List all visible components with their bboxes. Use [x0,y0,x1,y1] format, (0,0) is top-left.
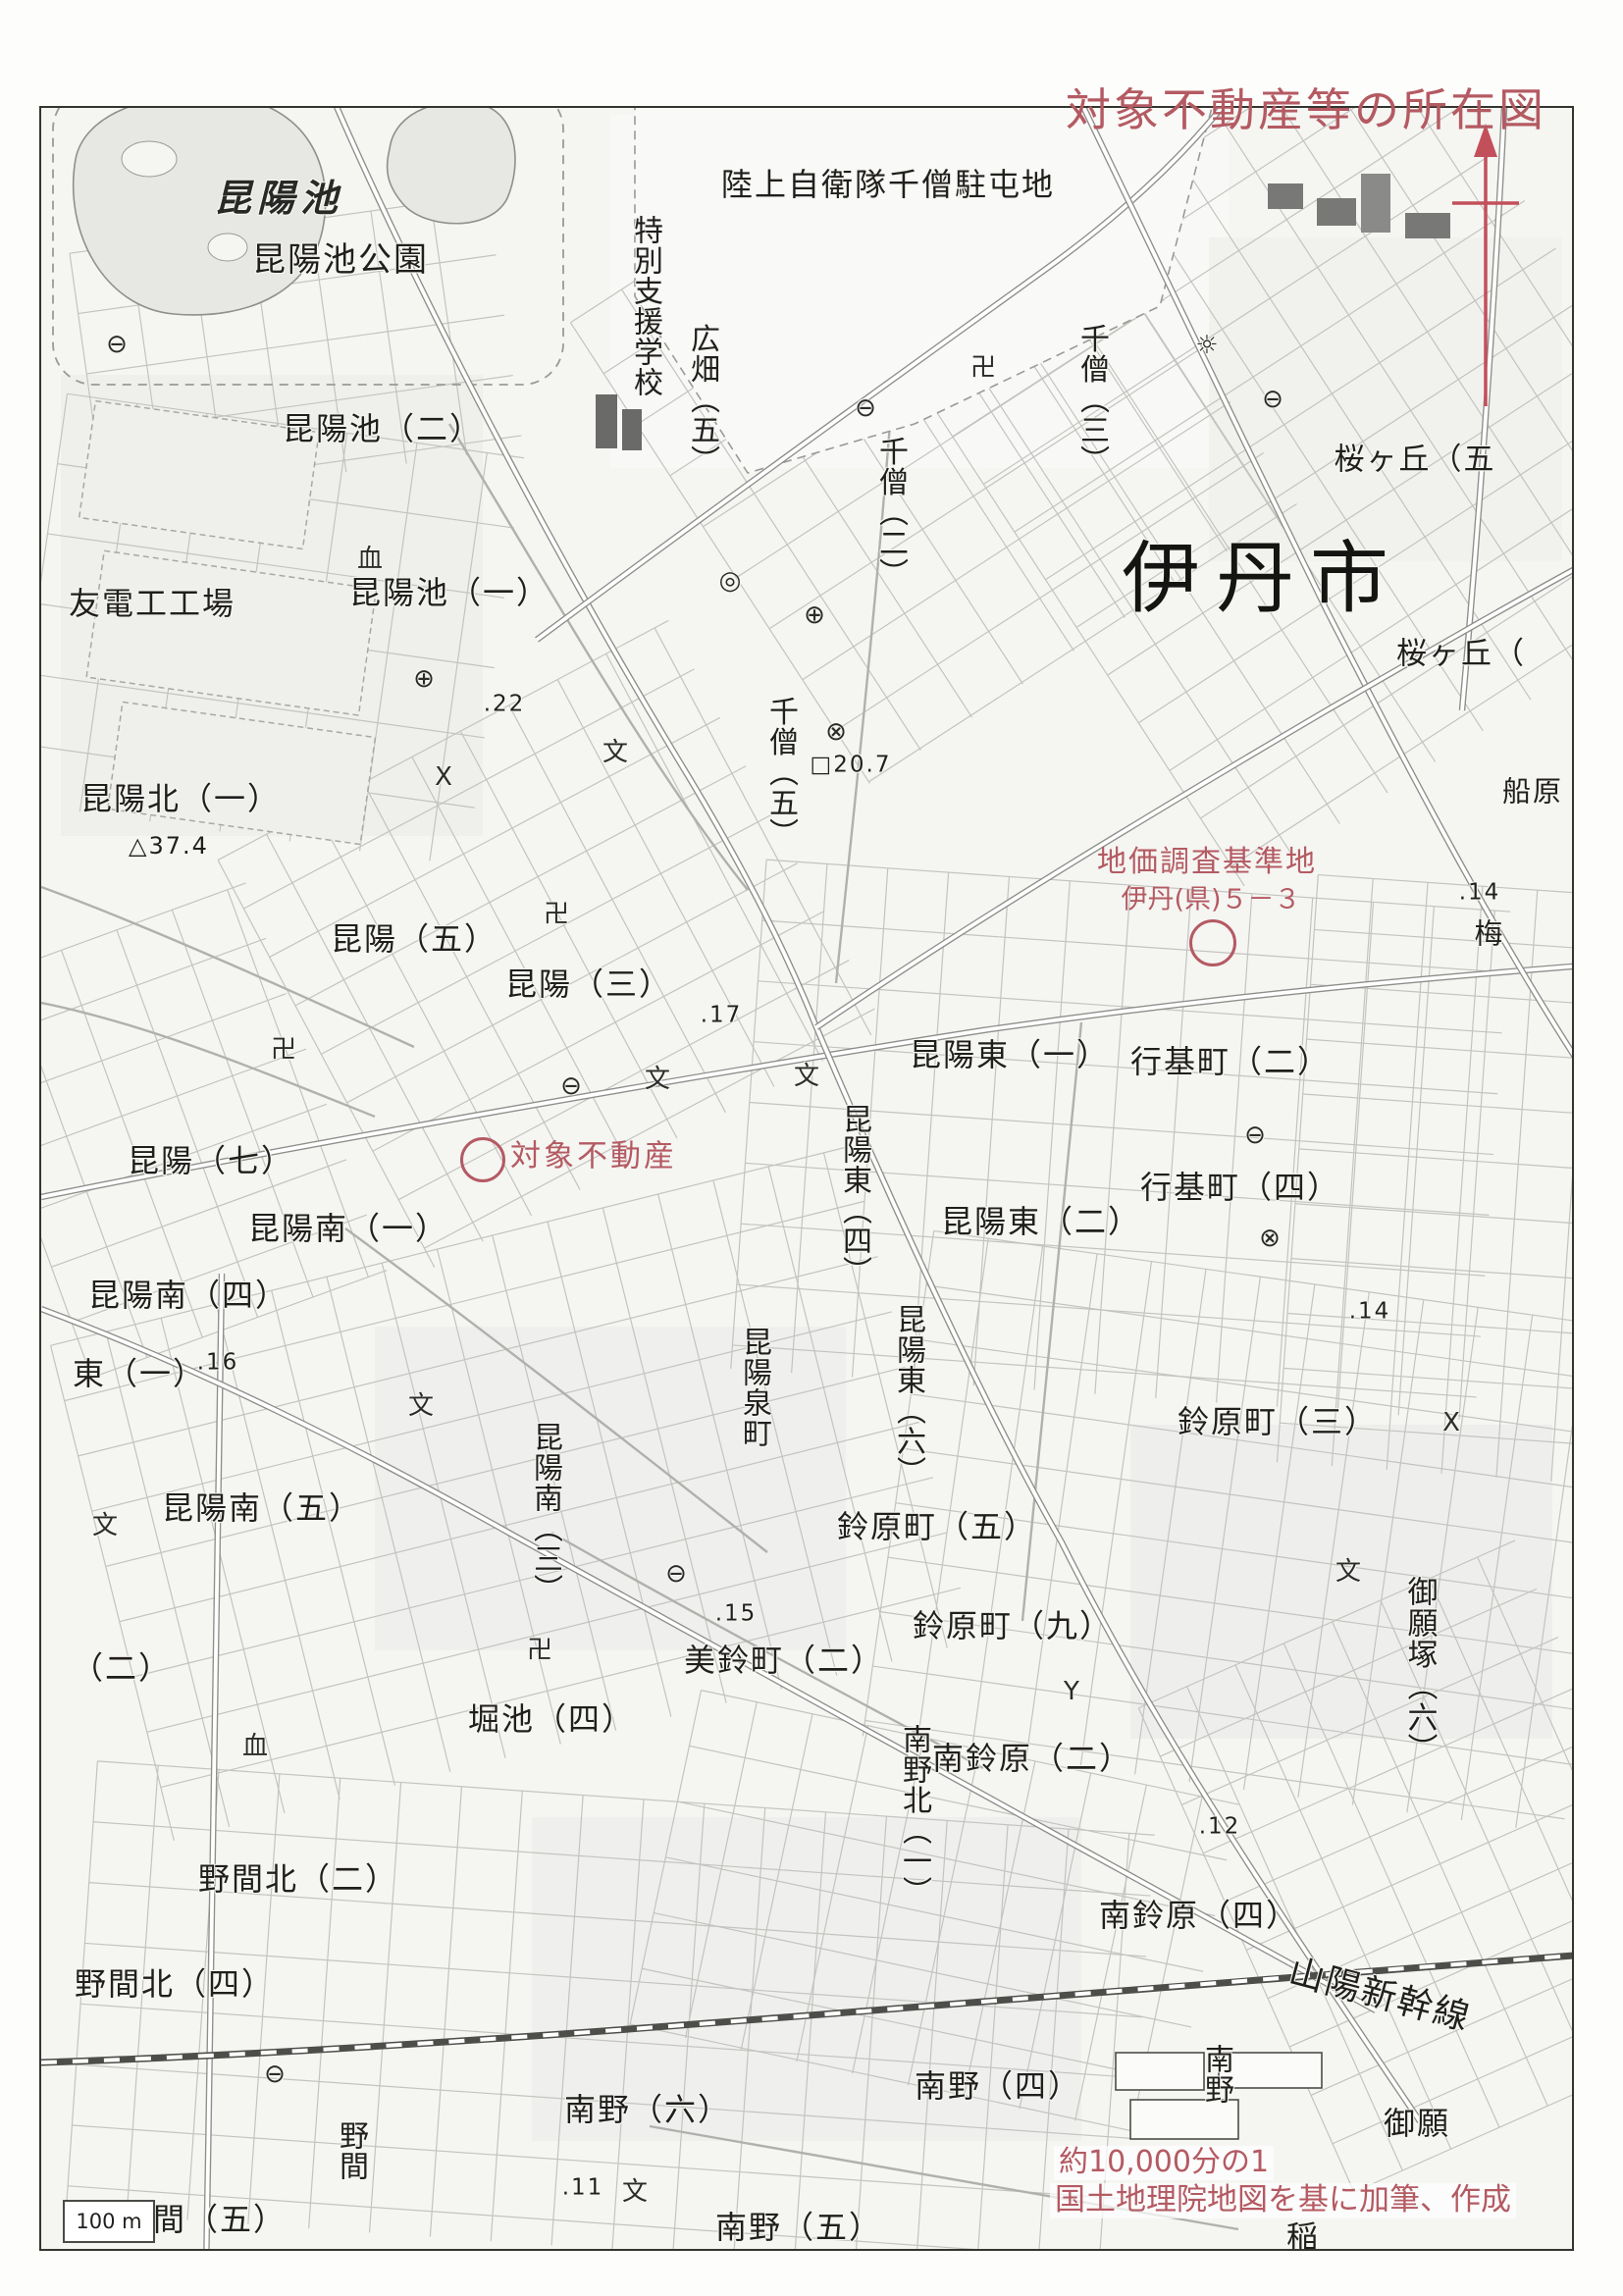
map-label: .14 [1349,1301,1391,1324]
map-scale-note: 約10,000分の1 [1054,2146,1274,2180]
map-symbol: 文 [622,2179,648,2205]
map-symbol: 文 [794,1064,819,1089]
map-label: 昆陽東（二） [941,1206,1141,1237]
map-label: □20.7 [811,755,892,777]
map-symbol: 文 [602,740,628,765]
map-label: 昆陽南（五） [162,1492,362,1524]
map-label: 千僧（二） [875,437,905,589]
map-symbol: 卍 [527,1638,552,1663]
map-label: 南野（五） [715,2212,882,2243]
map-label: 昆陽泉町 [739,1327,768,1448]
map-label: .16 [197,1352,239,1375]
map-label: 昆陽池（二） [283,413,483,444]
map-symbol: ☼ [1195,333,1218,358]
map-label: 桜ヶ丘（ [1396,640,1526,670]
map-label: 野間北（二） [198,1863,398,1895]
map-symbol: 卍 [544,902,569,927]
map-label: 南野北（一） [899,1724,928,1906]
map-label: 南鈴原（四） [1099,1900,1299,1931]
map-label: 友電工工場 [69,588,236,619]
map-label: 南野（六） [564,2094,731,2125]
benchmark-annotation-id: 伊丹(県)５－３ [1121,887,1300,913]
map-symbol: ⊖ [1262,387,1283,412]
map-symbol: 文 [645,1067,670,1092]
map-label: 千僧（五） [765,697,795,849]
map-symbol: ⊖ [665,1561,687,1587]
map-symbol: ◎ [719,568,742,594]
map-label: 野間北（四） [75,1968,275,2000]
map-label: 昆陽南（四） [88,1279,288,1311]
map-symbol: 卍 [271,1037,296,1063]
map-label: 稲 [1286,2221,1320,2251]
map-symbol: ⊖ [264,2061,286,2087]
subject-property-marker-circle [460,1137,505,1182]
map-label: 桜ヶ丘（五 [1335,445,1496,476]
map-symbol: 血 [357,547,383,572]
map-symbol: ⊖ [560,1073,582,1099]
map-label: 千僧（三） [1076,324,1106,476]
map-label: 広畑（五） [687,324,716,476]
map-label: 昆陽（三） [505,968,672,1000]
map-symbol: X [435,764,452,790]
map-symbol: 卍 [970,355,996,381]
map-symbol: ⊖ [106,332,128,357]
map-symbol: ⊕ [413,666,435,692]
map-label: 鈴原町（三） [1178,1406,1378,1437]
map-label: （二） [72,1652,172,1684]
page-title: 対象不動産等の所在図 [1066,75,1546,139]
map-label: 南野 [1201,2044,1230,2105]
map-label: 昆陽池（一） [349,577,550,608]
map-label: 御願塚（六） [1404,1576,1435,1764]
map-symbol: ⊕ [804,602,825,628]
map-label: 船原 [1502,778,1563,807]
map-label: 鈴原町（五） [837,1511,1037,1542]
map-label: 昆陽東（四） [839,1104,868,1286]
map-symbol: 血 [242,1734,268,1759]
map-label: △37.4 [129,834,209,858]
map-label: 特別支援学校 [630,215,659,397]
map-canvas: 昆陽池昆陽池公園陸上自衛隊千僧駐屯地特別支援学校広畑（五）千僧（三）千僧（二）千… [39,106,1574,2251]
map-symbol: X [1442,1410,1460,1435]
map-label: 間（五） [153,2204,287,2235]
map-label: 南野（四） [915,2070,1081,2102]
map-symbol: ⊖ [1244,1122,1266,1148]
map-label: .15 [715,1603,758,1626]
map-label: 御願 [1384,2108,1450,2139]
map-label: 東（一） [73,1358,206,1389]
map-label: 昆陽南（三） [530,1422,559,1604]
map-label: 南鈴原（二） [932,1743,1132,1774]
subject-property-label: 対象不動産 [510,1142,677,1173]
benchmark-marker-circle [1189,919,1236,966]
map-label: 堀池（四） [468,1703,635,1735]
map-inner: 昆陽池昆陽池公園陸上自衛隊千僧駐屯地特別支援学校広畑（五）千僧（三）千僧（二）千… [39,106,1574,2251]
map-label: .22 [484,694,526,716]
scale-bar: 100 m [63,2200,155,2243]
map-symbol: ⊖ [855,395,876,421]
map-label: .14 [1459,882,1501,905]
map-label: .12 [1199,1816,1241,1839]
map-source-note: 国土地理院地図を基に加筆、作成 [1050,2183,1516,2218]
map-label: 野間 [336,2120,365,2181]
map-label: 陸上自衛隊千僧駐屯地 [721,169,1055,200]
map-label: 昆陽池公園 [252,243,429,277]
map-label: 伊丹市 [1122,540,1404,618]
map-symbol: 文 [408,1393,434,1419]
location-map-page: 対象不動産等の所在図 [0,0,1623,2296]
map-label: 昆陽（五） [331,923,497,955]
map-label: 行基町（二） [1130,1046,1331,1077]
map-symbol: 文 [92,1513,118,1539]
map-label: 昆陽北（一） [80,783,281,814]
map-symbol: ⊗ [1259,1226,1281,1251]
map-label: 昆陽東（六） [893,1304,922,1487]
benchmark-annotation-title: 地価調査基準地 [1097,848,1317,877]
map-label: .11 [562,2177,604,2200]
map-label: 昆陽（七） [128,1145,294,1176]
map-label: 昆陽南（一） [248,1213,448,1244]
map-label: 美鈴町（二） [684,1644,884,1676]
map-label: 昆陽池 [214,180,343,217]
map-label: 昆陽東（一） [910,1039,1110,1070]
map-label: .17 [701,1005,743,1027]
map-label: 鈴原町（九） [913,1610,1113,1642]
map-symbol: 文 [1335,1559,1361,1585]
map-symbol: Y [1064,1679,1079,1704]
map-label: 梅 [1474,920,1504,949]
map-label: 行基町（四） [1140,1172,1340,1203]
map-symbol: ⊗ [825,719,847,745]
